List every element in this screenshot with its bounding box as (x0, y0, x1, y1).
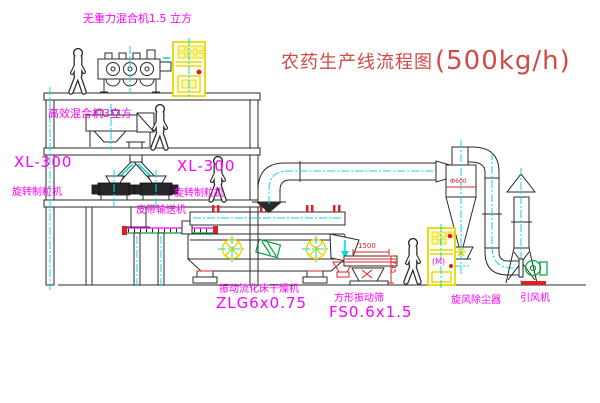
label-high-mixer: 高效混合机3立方 (48, 108, 132, 119)
person-figure (153, 105, 166, 148)
label-elevator-motor: (M) (432, 258, 445, 266)
label-belt-conveyor: 皮带输送机 (136, 206, 186, 216)
label-fan: 引风机 (520, 294, 550, 304)
title-capacity: (500kg/h) (435, 46, 571, 76)
bucket-elevator-1-drawing (173, 38, 205, 97)
label-xl300-left-model: XL-300 (14, 155, 72, 170)
label-dryer-model: ZLG6x0.75 (216, 296, 307, 311)
dimension-sieve-length: 1500 (358, 243, 376, 250)
induced-draft-fan-drawing (519, 259, 547, 285)
label-xl300-right-name: 旋转制粒机 (174, 189, 224, 199)
person-figure (406, 239, 419, 282)
dimension-sieve-height: 745 (389, 260, 396, 273)
diagram-title: 农药生产线流程图 (500kg/h) (281, 46, 571, 76)
process-flow-diagram: 无重力混合机1.5 立方 农药生产线流程图 (500kg/h) 高效混合机3立方… (0, 0, 600, 403)
label-xl300-left-name: 旋转制粒机 (12, 188, 62, 198)
label-gravity-mixer: 无重力混合机1.5 立方 (83, 13, 192, 24)
fluid-bed-dryer-drawing (182, 202, 345, 283)
person-figure (71, 49, 84, 92)
label-xl300-right-model: XL-300 (177, 159, 235, 174)
dimension-cyclone-diameter: Ф600 (450, 179, 467, 185)
title-text: 农药生产线流程图 (281, 48, 433, 74)
gravity-mixer-drawing (98, 46, 171, 92)
label-cyclone: 旋风除尘器 (451, 296, 501, 306)
main-duct-drawing (258, 161, 438, 204)
label-sieve-model: FS0.6x1.5 (329, 305, 412, 320)
